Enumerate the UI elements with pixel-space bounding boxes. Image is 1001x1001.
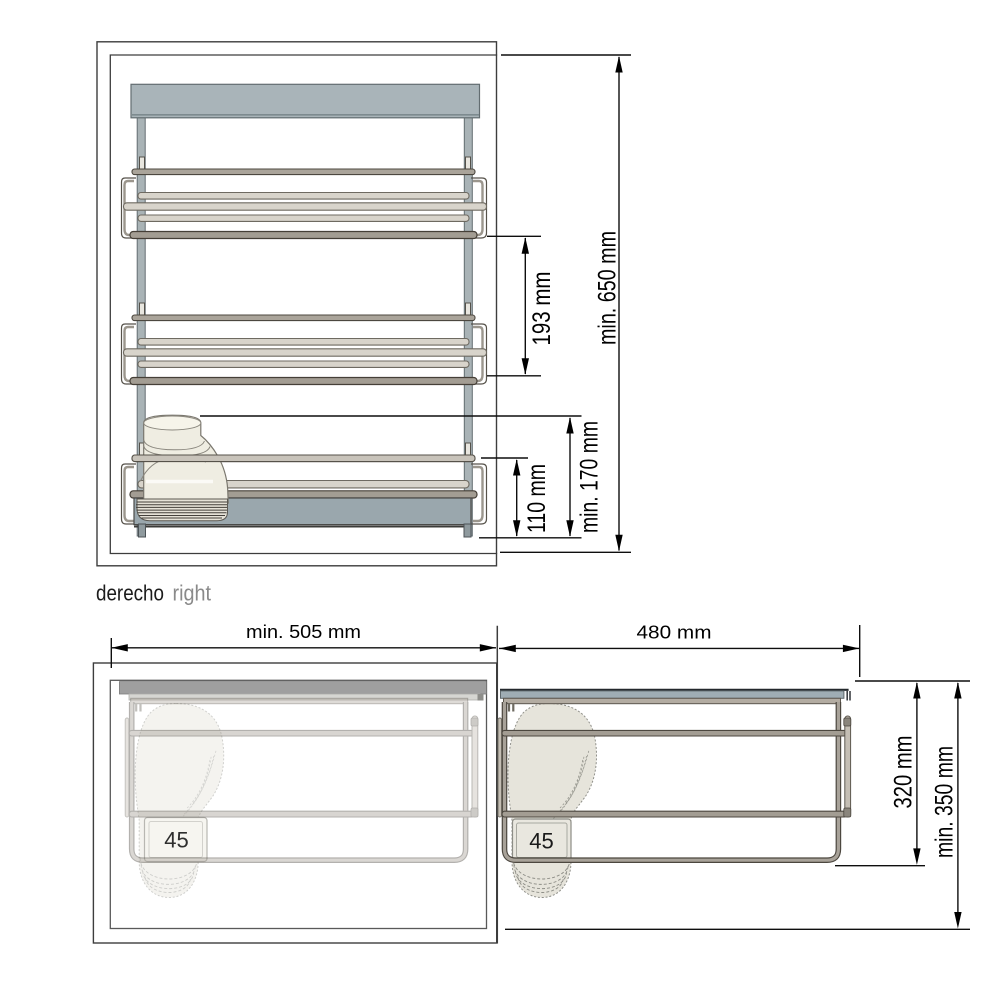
svg-text:min. 170 mm: min. 170 mm xyxy=(576,421,604,533)
svg-text:45: 45 xyxy=(164,828,188,853)
svg-text:193 mm: 193 mm xyxy=(528,272,556,346)
svg-text:min. 505 mm: min. 505 mm xyxy=(246,622,361,642)
svg-text:derecho: derecho xyxy=(96,581,164,606)
svg-text:min. 350 mm: min. 350 mm xyxy=(931,746,959,858)
svg-text:min. 650 mm: min. 650 mm xyxy=(594,231,622,345)
svg-text:110 mm: 110 mm xyxy=(523,464,551,533)
svg-text:480 mm: 480 mm xyxy=(637,623,712,643)
svg-text:right: right xyxy=(173,581,212,606)
svg-text:320 mm: 320 mm xyxy=(890,736,918,809)
svg-text:45: 45 xyxy=(529,829,553,854)
